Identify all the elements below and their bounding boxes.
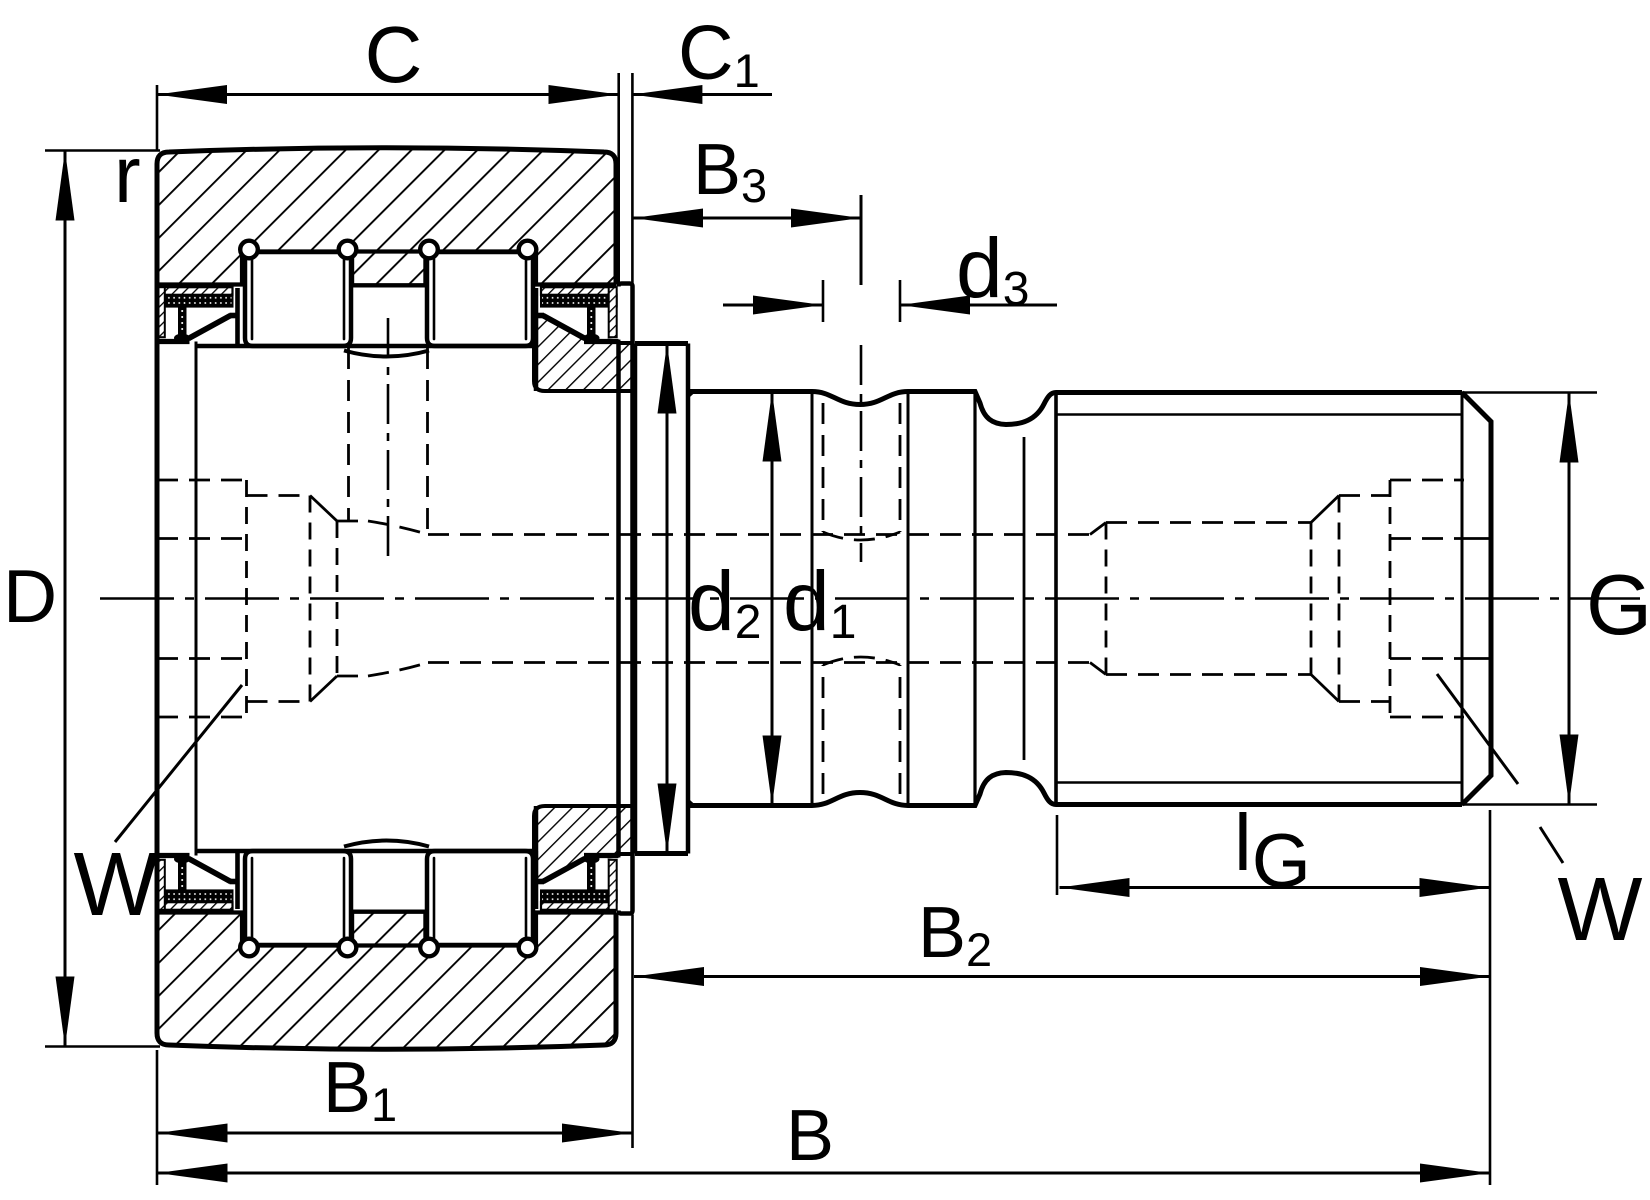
svg-text:W: W — [1558, 860, 1643, 960]
svg-text:B: B — [786, 1096, 834, 1176]
svg-text:D: D — [3, 554, 57, 638]
svg-text:G: G — [1586, 558, 1650, 653]
svg-text:W: W — [74, 835, 159, 935]
svg-text:r: r — [114, 130, 141, 219]
svg-text:C: C — [365, 10, 423, 99]
